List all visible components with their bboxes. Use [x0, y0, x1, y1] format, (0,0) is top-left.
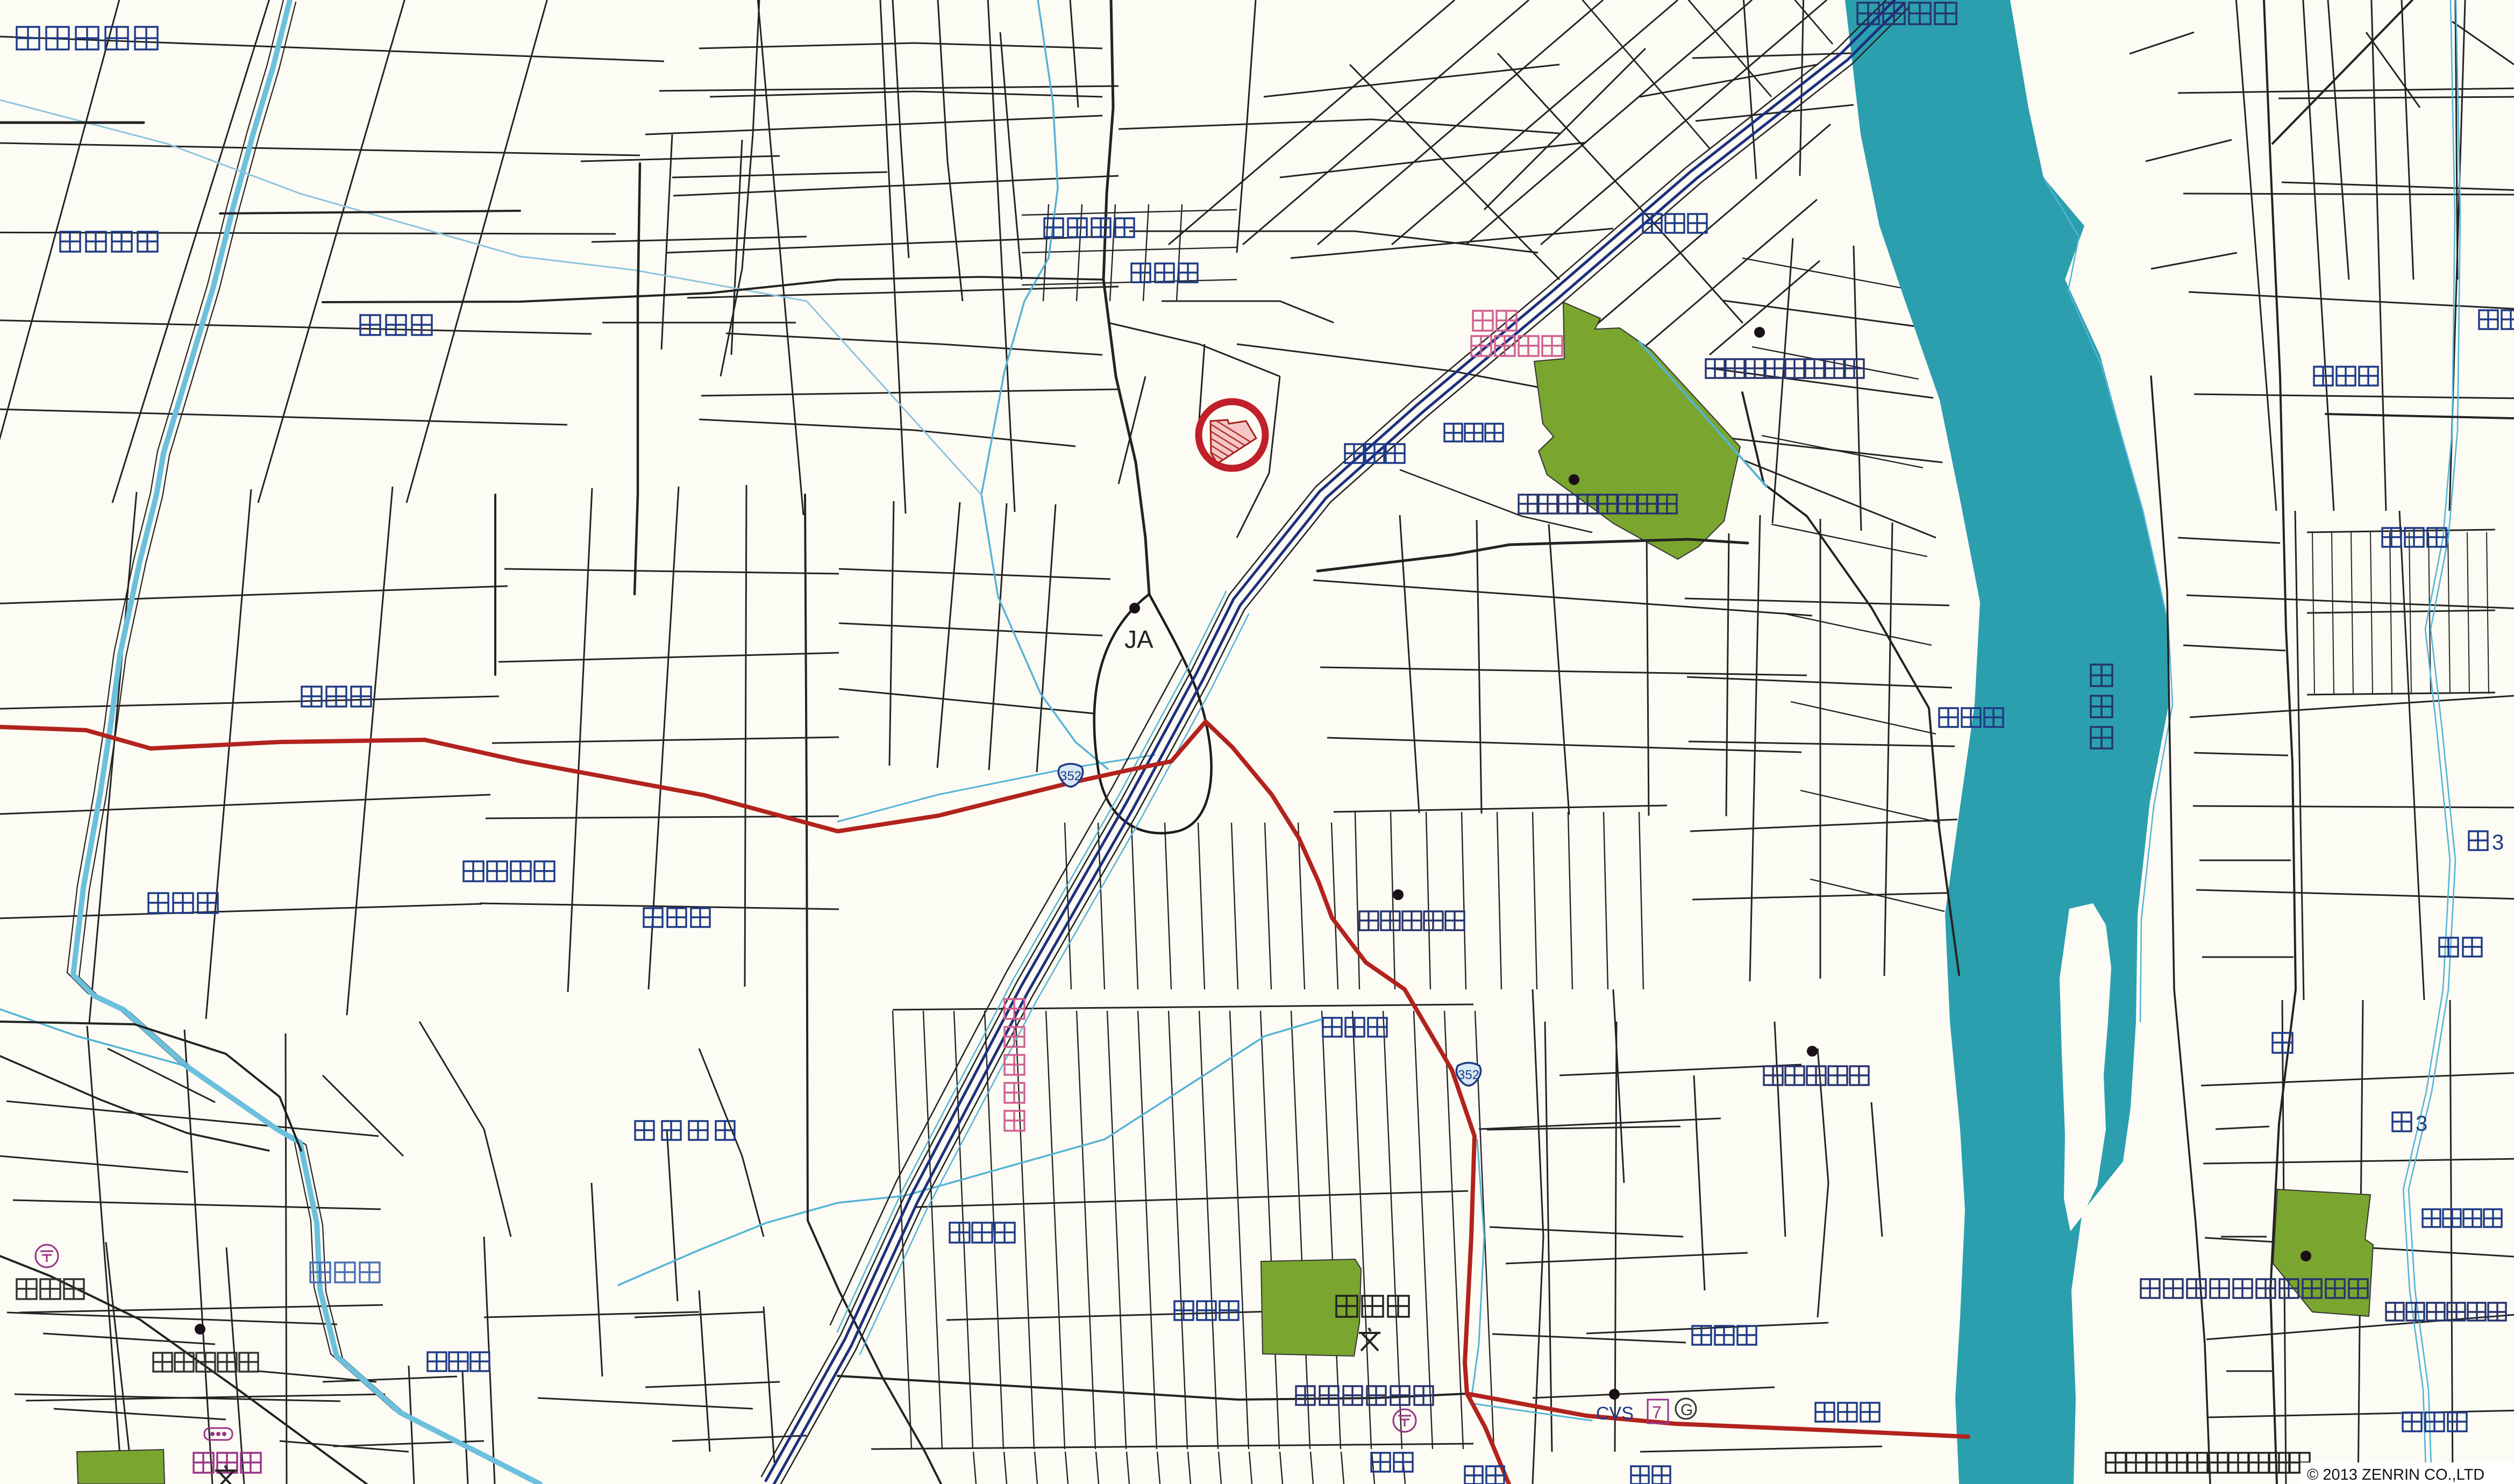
svg-text:3: 3 [2492, 831, 2504, 854]
svg-text:7: 7 [1652, 1403, 1662, 1422]
svg-text:G: G [1680, 1401, 1693, 1419]
svg-text:JA: JA [1124, 625, 1153, 653]
svg-text:352: 352 [1060, 769, 1081, 783]
svg-text:© 2013 ZENRIN CO.,LTD: © 2013 ZENRIN CO.,LTD [2307, 1466, 2484, 1483]
svg-text:3: 3 [2416, 1112, 2427, 1136]
svg-text:CVS: CVS [1596, 1403, 1634, 1424]
svg-text:352: 352 [1458, 1068, 1479, 1082]
